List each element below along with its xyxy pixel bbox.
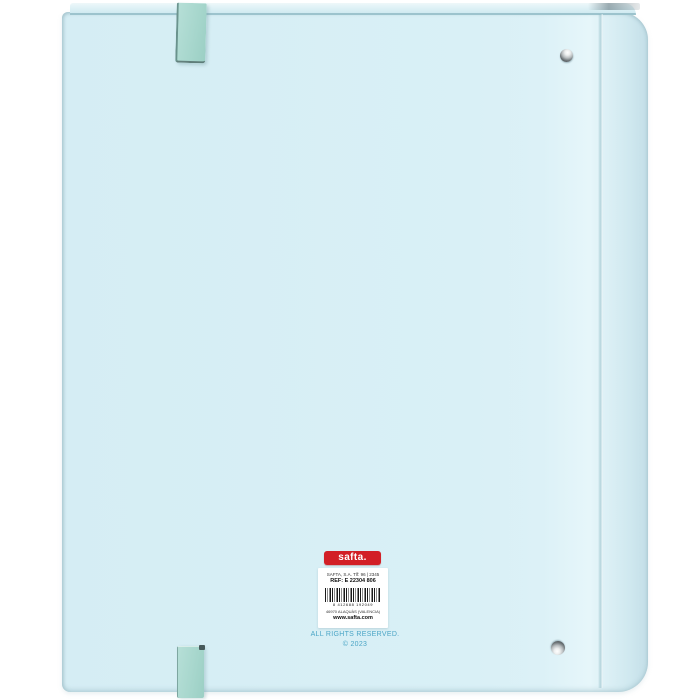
copyright-text: ALL RIGHTS RESERVED. © 2023 [280,630,430,650]
copyright-line1: ALL RIGHTS RESERVED. [280,630,430,640]
barcode-number: 8 412688 192049 [333,602,373,608]
elastic-strap-top-icon [175,3,207,64]
manufacturer-label: SAFTA, S.A. Tlf: 96 | 2345 REF: E 22304 … [318,568,388,628]
label-website: www.safta.com [333,615,373,622]
binder-top-edge-shadow [588,3,640,10]
brand-logo: safta. [324,551,381,565]
elastic-strap-bottom-icon [177,646,204,698]
barcode-icon [325,588,381,602]
strap-shadow-notch [199,645,205,650]
brand-logo-text: safta. [338,553,367,563]
copyright-line2: © 2023 [280,640,430,651]
spine-crease [598,14,603,688]
product-photo: safta. SAFTA, S.A. Tlf: 96 | 2345 REF: E… [0,0,700,700]
label-ref-line: REF: E 22304 806 [330,578,376,586]
binder-top-edge [70,3,636,15]
